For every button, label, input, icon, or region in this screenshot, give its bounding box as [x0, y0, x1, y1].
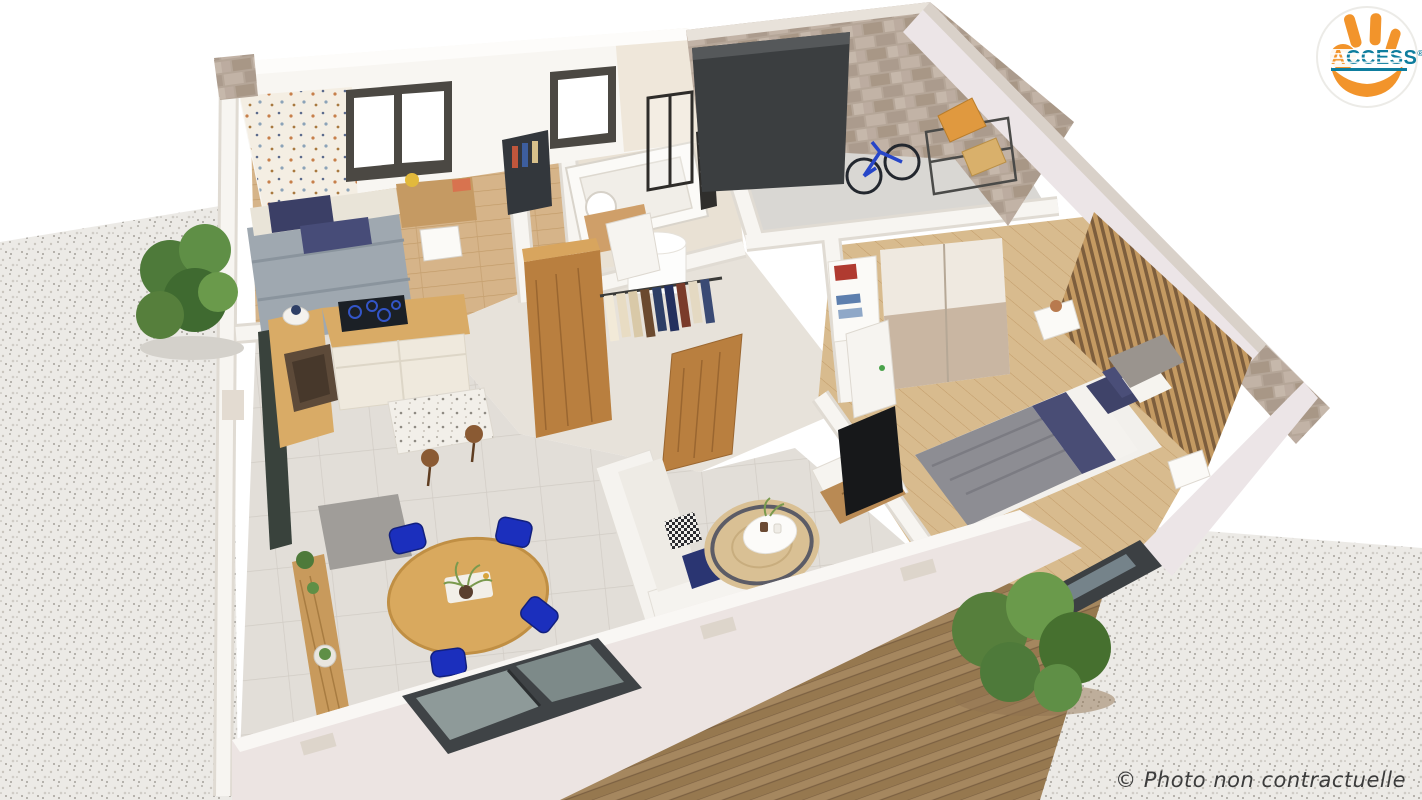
dressing-cabinet: [524, 250, 612, 438]
left-wall-stone-top: [214, 54, 258, 100]
dressing-door-open: [662, 334, 742, 472]
left-wall-stone-patch: [222, 390, 244, 420]
coat-rack: [502, 130, 552, 215]
logo-underline: [1331, 68, 1407, 71]
logo-text-stripes: [1331, 53, 1405, 63]
bathroom-window: [550, 66, 616, 149]
bar-stool-2: [465, 425, 483, 443]
door-handle: [879, 365, 885, 371]
desk-lamp: [405, 173, 419, 187]
kids-room-window: [346, 81, 452, 182]
desk-chair: [420, 226, 462, 261]
bedroom-door-open: [846, 320, 896, 418]
bedside-lamp-1: [1050, 300, 1062, 312]
console-plant-1: [296, 551, 314, 569]
photo-disclaimer-caption: © Photo non contractuelle: [1115, 768, 1406, 792]
floorplan-render: ACCESS® © Photo non contractuelle: [0, 0, 1422, 800]
desk-pencils: [452, 178, 471, 192]
shower-screen: [648, 92, 692, 190]
floorplan-scene: ACCESS®: [0, 0, 1422, 800]
red-storage-box: [834, 264, 857, 281]
bar-stool-1: [421, 449, 439, 467]
console-plant-2: [307, 582, 319, 594]
